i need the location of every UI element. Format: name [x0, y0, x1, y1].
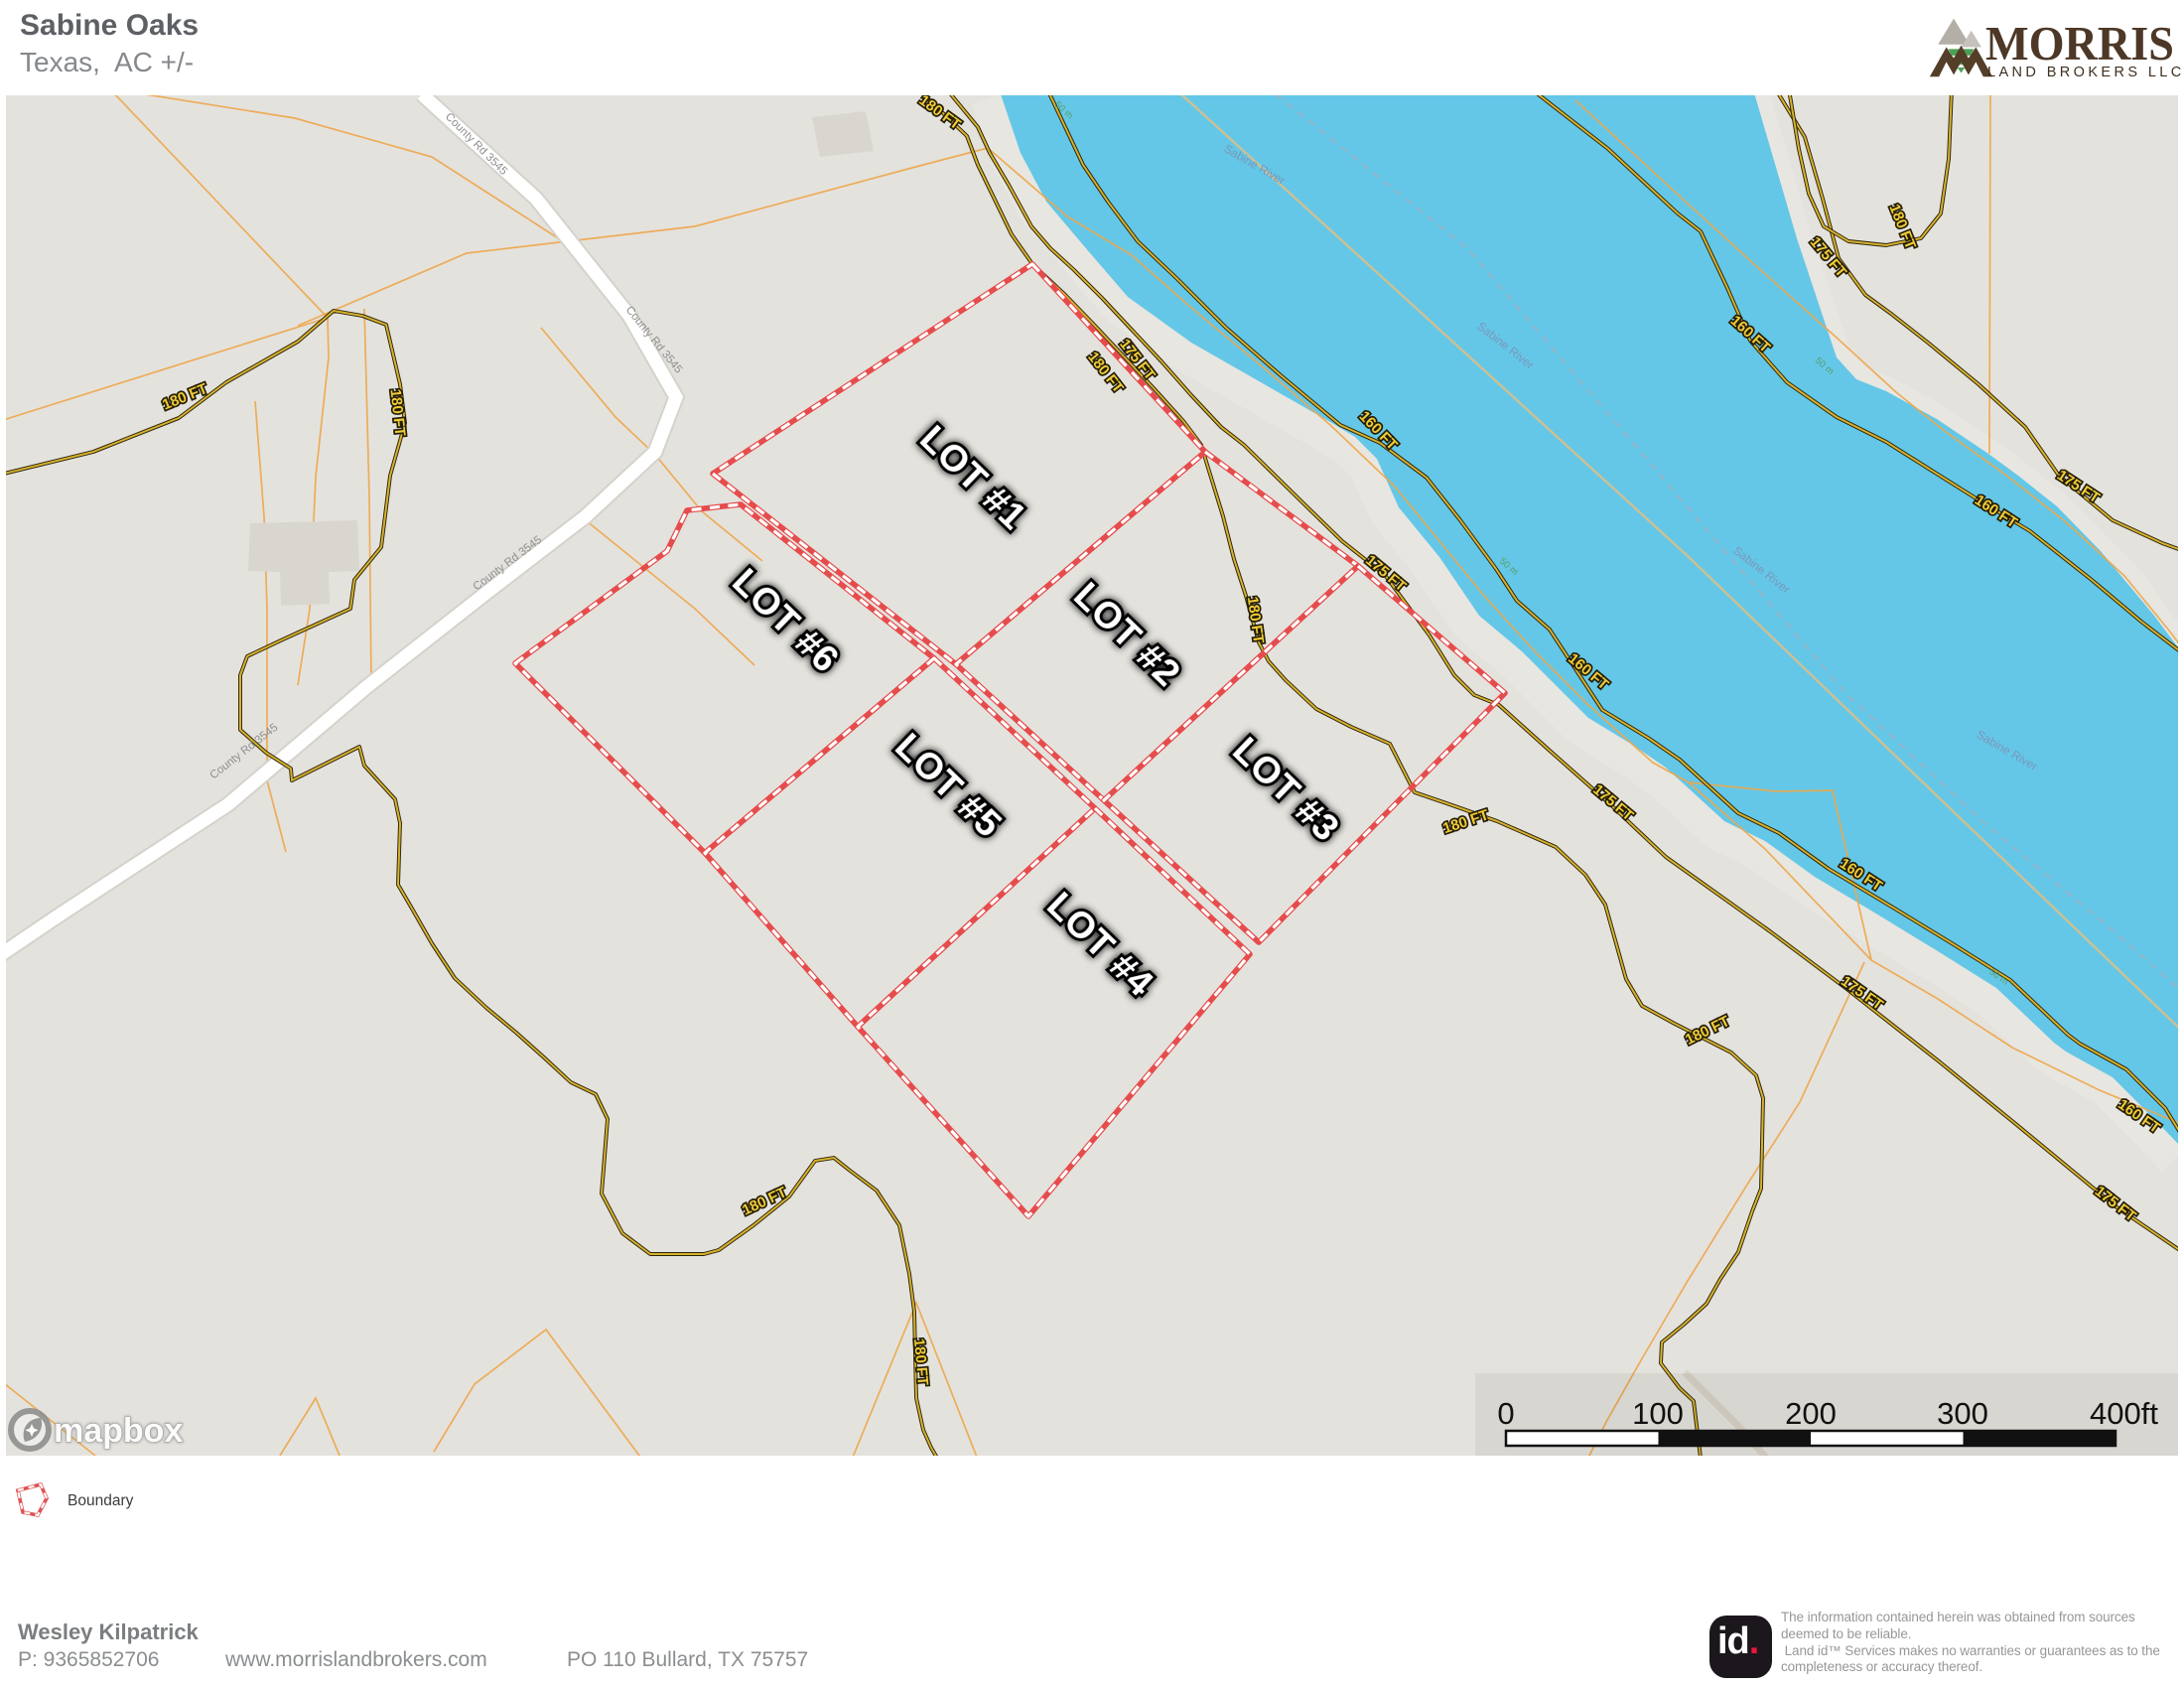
svg-text:400ft: 400ft	[2090, 1396, 2158, 1431]
svg-text:300: 300	[1937, 1396, 1988, 1431]
svg-text:Boundary: Boundary	[68, 1492, 134, 1509]
svg-text:mapbox: mapbox	[54, 1412, 183, 1450]
svg-text:MORRIS: MORRIS	[1985, 16, 2174, 70]
svg-text:100: 100	[1632, 1396, 1684, 1431]
svg-text:LAND BROKERS LLC: LAND BROKERS LLC	[1987, 65, 2182, 80]
svg-text:200: 200	[1785, 1396, 1837, 1431]
svg-text:0: 0	[1497, 1396, 1514, 1431]
